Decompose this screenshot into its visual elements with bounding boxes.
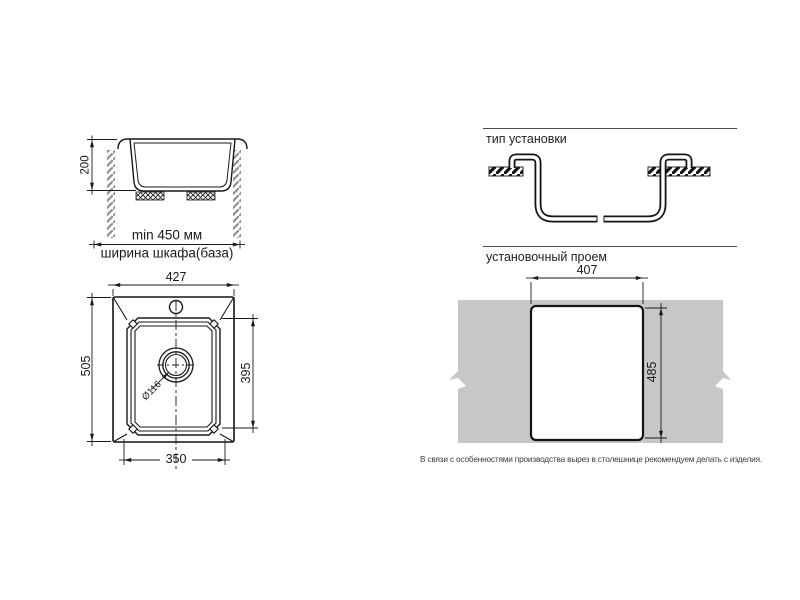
sink-cross-section <box>118 139 247 200</box>
dim-bowl-width-350: 350 <box>166 453 187 466</box>
dim-bowl-depth-395: 395 <box>240 363 253 384</box>
dim-cutout-height-485: 485 <box>646 362 659 383</box>
label-cabinet-width: ширина шкафа(база) <box>101 246 234 260</box>
dim-min-cabinet-width: min 450 мм <box>132 228 202 242</box>
cabinet-wall-left <box>107 150 115 238</box>
sink-cutout <box>531 306 643 440</box>
installation-opening-drawing <box>445 260 785 460</box>
dim-overall-width-427: 427 <box>166 271 187 284</box>
dim-depth-200: 200 <box>80 155 92 174</box>
divider-top <box>483 128 737 129</box>
section-title-installation-type: тип установки <box>486 132 567 146</box>
countertop-left <box>489 167 523 176</box>
dim-lines-427 <box>108 285 239 296</box>
divider-middle <box>483 246 737 247</box>
dim-overall-depth-505: 505 <box>80 356 93 377</box>
technical-drawing-page: { "diagram": { "cabinet_section": { "dep… <box>0 0 800 600</box>
production-note: В связи с особенностями производства выр… <box>420 454 762 464</box>
sink-profile-drawing <box>480 150 730 230</box>
sink-profile-walls <box>512 157 689 222</box>
dim-cutout-width-407: 407 <box>577 264 598 277</box>
cabinet-wall-right <box>233 150 241 238</box>
countertop-right <box>648 167 710 176</box>
